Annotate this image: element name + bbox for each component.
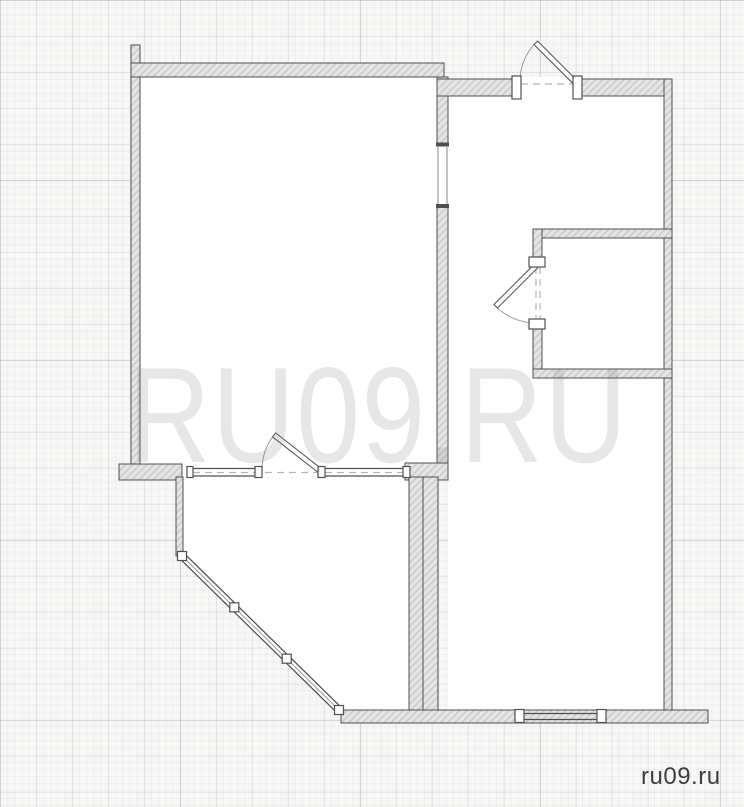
room-right-fill	[448, 96, 664, 710]
wall-partition-block-left	[119, 464, 182, 480]
room-top-left-fill	[140, 77, 437, 477]
entrance-door-arc	[520, 43, 536, 81]
wall-middle-lower-a	[409, 477, 423, 711]
floor-plan	[0, 0, 744, 807]
glazing-mullion	[178, 552, 187, 561]
partition-jamb-1	[187, 467, 193, 478]
partition-jamb-4	[403, 467, 410, 478]
entrance-jamb-left	[512, 76, 521, 99]
wall-small-room-bottom	[533, 369, 672, 378]
wall-right	[664, 79, 672, 712]
wall-right-room-top-right	[582, 79, 672, 96]
glazing-mullion	[335, 706, 344, 715]
middle-wall-opening-fill	[437, 145, 448, 206]
entrance-door	[534, 41, 576, 83]
small-room-door-opening-fill	[533, 266, 542, 320]
glazing-mullion	[282, 654, 291, 663]
wall-right-room-top-left	[437, 79, 512, 96]
small-room-jamb-bottom	[529, 319, 545, 329]
wall-middle-lower-b	[423, 477, 438, 711]
wall-small-room-left-upper	[533, 229, 542, 258]
wall-middle-upper-b	[437, 205, 448, 480]
partition-jamb-3	[318, 467, 325, 478]
room-fills	[140, 77, 664, 710]
room-small-fill	[542, 238, 664, 369]
wall-small-room-top	[533, 229, 672, 238]
glazing-mullion	[230, 603, 239, 612]
wall-balcony-left	[176, 477, 183, 556]
small-room-jamb-top	[529, 257, 545, 267]
wall-left	[131, 45, 140, 480]
partition-jamb-2	[255, 467, 262, 478]
bottom-window-jamb-right	[597, 710, 606, 723]
bottom-window-jamb-left	[515, 710, 524, 723]
site-label: ru09.ru	[641, 763, 721, 791]
floor-plan-canvas: RU09.RU ru09.ru	[0, 0, 744, 807]
wall-top	[131, 63, 444, 77]
entrance-jamb-right	[573, 76, 582, 99]
